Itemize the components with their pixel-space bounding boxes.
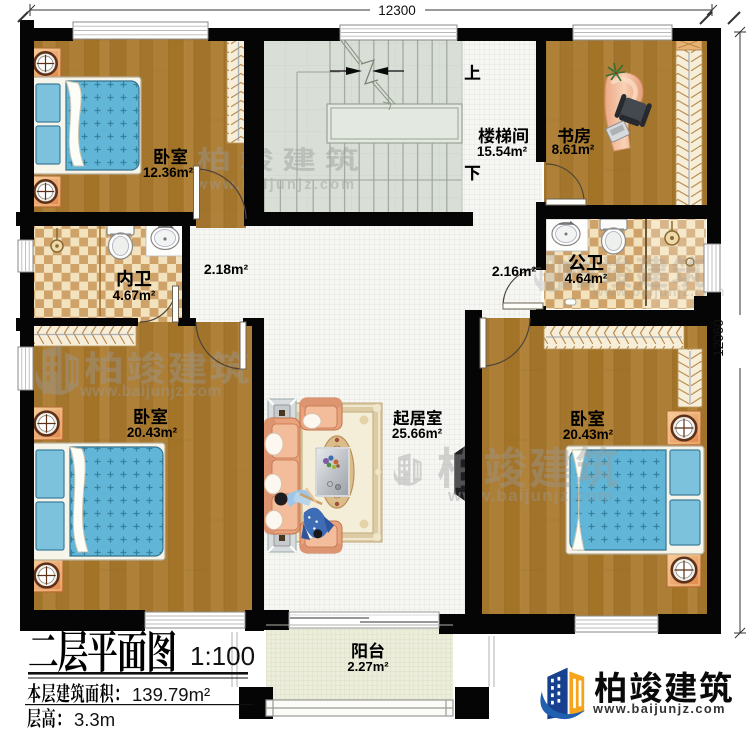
svg-text:4.64m²: 4.64m²: [565, 271, 608, 286]
svg-text:2.27m²: 2.27m²: [347, 659, 389, 674]
svg-text:www.baijunjz.com: www.baijunjz.com: [592, 701, 726, 716]
svg-text:20.43m²: 20.43m²: [563, 427, 614, 442]
svg-text:12.36m²: 12.36m²: [143, 165, 194, 180]
svg-text:3.3m: 3.3m: [74, 709, 115, 730]
svg-text:25.66m²: 25.66m²: [392, 426, 443, 441]
svg-text:www.baijunjz.com: www.baijunjz.com: [79, 383, 222, 400]
svg-text:20.43m²: 20.43m²: [127, 425, 178, 440]
svg-text:1:100: 1:100: [190, 641, 255, 671]
svg-text:8.61m²: 8.61m²: [552, 142, 595, 157]
svg-text:139.79m²: 139.79m²: [132, 684, 210, 705]
svg-text:12060: 12060: [711, 319, 726, 357]
svg-text:12300: 12300: [378, 3, 416, 18]
svg-text:15.54m²: 15.54m²: [477, 144, 528, 159]
svg-text:4.67m²: 4.67m²: [113, 288, 156, 303]
svg-text:2.18m²: 2.18m²: [204, 261, 249, 277]
svg-text:www.baijunjz.com: www.baijunjz.com: [195, 177, 356, 193]
svg-text:2.16m²: 2.16m²: [492, 263, 537, 279]
